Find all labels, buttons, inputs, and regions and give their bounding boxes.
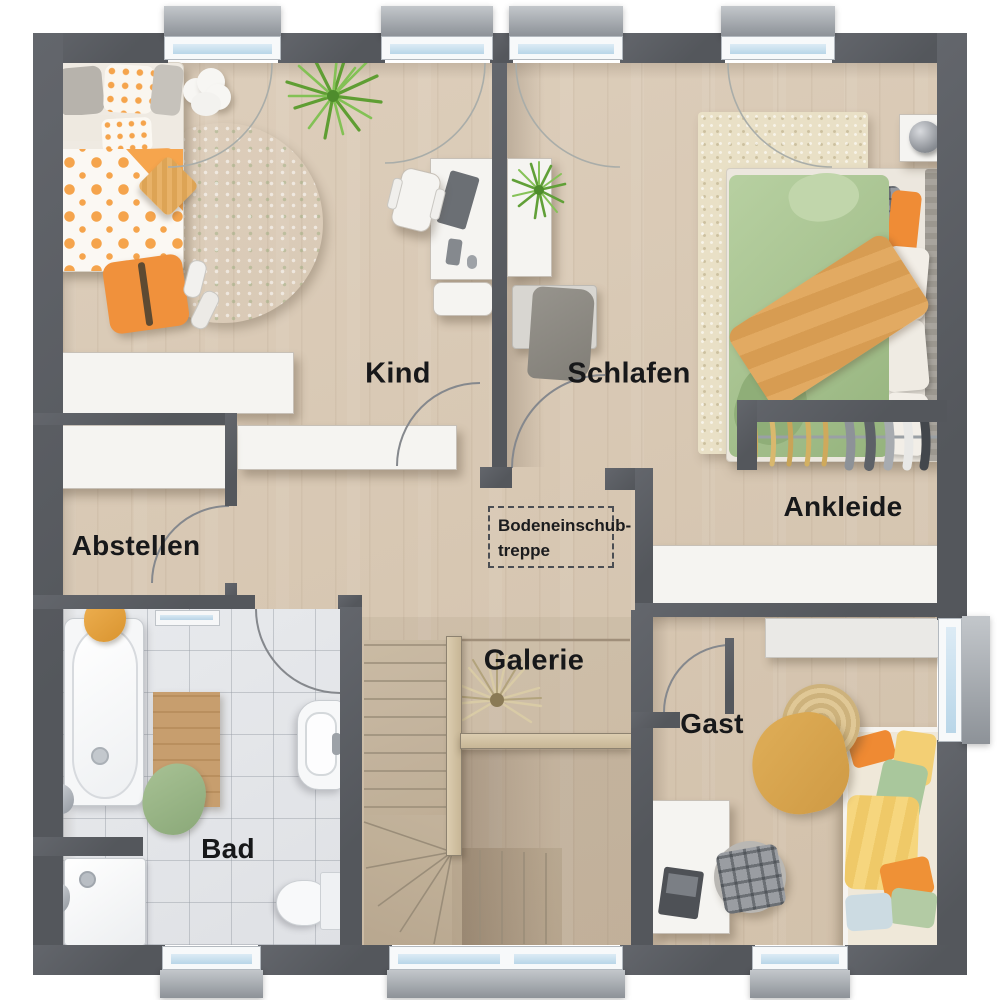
wall bbox=[33, 413, 228, 425]
door-leaf bbox=[725, 638, 734, 714]
room-label-schlafen: Schlafen bbox=[567, 358, 690, 391]
room-label-abstellen: Abstellen bbox=[72, 530, 201, 562]
window-sill bbox=[164, 6, 281, 36]
room-label-galerie: Galerie bbox=[484, 645, 584, 678]
wall bbox=[635, 468, 653, 616]
wall bbox=[480, 467, 512, 488]
room-label-gast: Gast bbox=[680, 708, 743, 740]
window bbox=[164, 36, 281, 60]
wall bbox=[937, 740, 967, 975]
window-sill bbox=[381, 6, 493, 36]
window-sill bbox=[509, 6, 623, 36]
window-sill bbox=[721, 6, 835, 36]
wall bbox=[340, 607, 362, 945]
wall bbox=[620, 33, 725, 63]
window bbox=[721, 36, 835, 60]
wall bbox=[631, 712, 680, 728]
window bbox=[509, 36, 623, 60]
room-label-bad: Bad bbox=[201, 833, 255, 865]
wall bbox=[737, 400, 947, 422]
wall bbox=[33, 837, 143, 856]
floor-plan: Kind Schlafen Abstellen Ankleide Bad Gal… bbox=[0, 0, 1000, 1000]
attic-hatch-line1: Bodeneinschub- bbox=[498, 514, 612, 539]
wall bbox=[278, 33, 385, 63]
wall bbox=[635, 603, 947, 617]
wall bbox=[845, 945, 967, 975]
window bbox=[381, 36, 493, 60]
attic-hatch-line2: treppe bbox=[498, 539, 612, 564]
window bbox=[938, 618, 962, 742]
window bbox=[162, 946, 261, 970]
room-label-ankleide: Ankleide bbox=[783, 491, 902, 523]
wall bbox=[33, 945, 165, 975]
wall bbox=[620, 945, 755, 975]
window-double bbox=[389, 946, 623, 970]
attic-hatch-label: Bodeneinschub- treppe bbox=[488, 506, 614, 568]
wall bbox=[737, 400, 757, 470]
room-label-kind: Kind bbox=[365, 358, 431, 391]
wall bbox=[937, 33, 967, 620]
wall bbox=[492, 63, 507, 467]
window-sill bbox=[750, 970, 850, 998]
window bbox=[752, 946, 848, 970]
wall bbox=[631, 610, 653, 945]
window-sill bbox=[387, 970, 625, 998]
wall bbox=[258, 945, 392, 975]
gallery-balustrade bbox=[460, 733, 632, 749]
wall bbox=[33, 595, 255, 609]
wall bbox=[225, 413, 237, 506]
window-sill bbox=[962, 616, 990, 744]
wall bbox=[33, 33, 63, 975]
window-sill bbox=[160, 970, 263, 998]
